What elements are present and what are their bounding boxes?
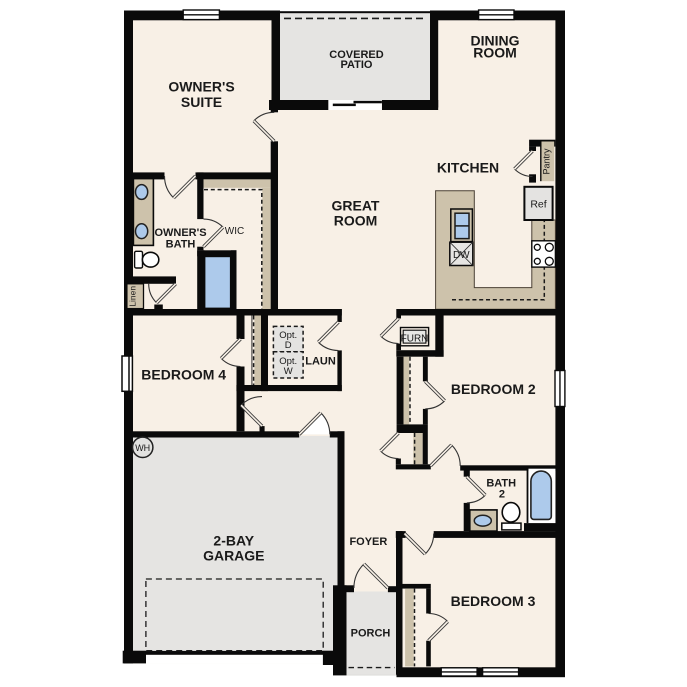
svg-text:Pantry: Pantry bbox=[542, 148, 552, 175]
svg-text:WIC: WIC bbox=[225, 226, 244, 237]
svg-text:WH: WH bbox=[135, 443, 150, 453]
svg-text:FURN: FURN bbox=[401, 333, 429, 344]
svg-text:OWNER'S: OWNER'S bbox=[168, 79, 234, 95]
svg-text:2-BAY: 2-BAY bbox=[213, 533, 254, 549]
svg-text:BEDROOM 3: BEDROOM 3 bbox=[451, 593, 536, 609]
svg-text:ROOM: ROOM bbox=[473, 45, 517, 61]
svg-text:PORCH: PORCH bbox=[351, 627, 391, 639]
svg-text:W: W bbox=[284, 366, 293, 377]
svg-text:Ref: Ref bbox=[530, 199, 546, 211]
svg-text:SUITE: SUITE bbox=[181, 94, 222, 110]
svg-text:GARAGE: GARAGE bbox=[203, 548, 264, 564]
svg-text:PATIO: PATIO bbox=[341, 59, 373, 71]
svg-text:FOYER: FOYER bbox=[349, 536, 387, 548]
svg-text:DW: DW bbox=[453, 250, 470, 261]
svg-text:KITCHEN: KITCHEN bbox=[437, 160, 499, 176]
svg-text:2: 2 bbox=[499, 489, 505, 501]
svg-text:ROOM: ROOM bbox=[334, 213, 378, 229]
svg-text:LAUN: LAUN bbox=[305, 356, 336, 368]
svg-text:OWNER'S: OWNER'S bbox=[154, 227, 206, 239]
svg-text:GREAT: GREAT bbox=[332, 198, 380, 214]
svg-text:BATH: BATH bbox=[166, 238, 196, 250]
svg-text:D: D bbox=[285, 340, 292, 351]
svg-text:BEDROOM 2: BEDROOM 2 bbox=[451, 381, 536, 397]
svg-text:BATH: BATH bbox=[486, 477, 516, 489]
svg-text:BEDROOM 4: BEDROOM 4 bbox=[141, 366, 226, 382]
svg-text:Linen: Linen bbox=[128, 286, 138, 307]
